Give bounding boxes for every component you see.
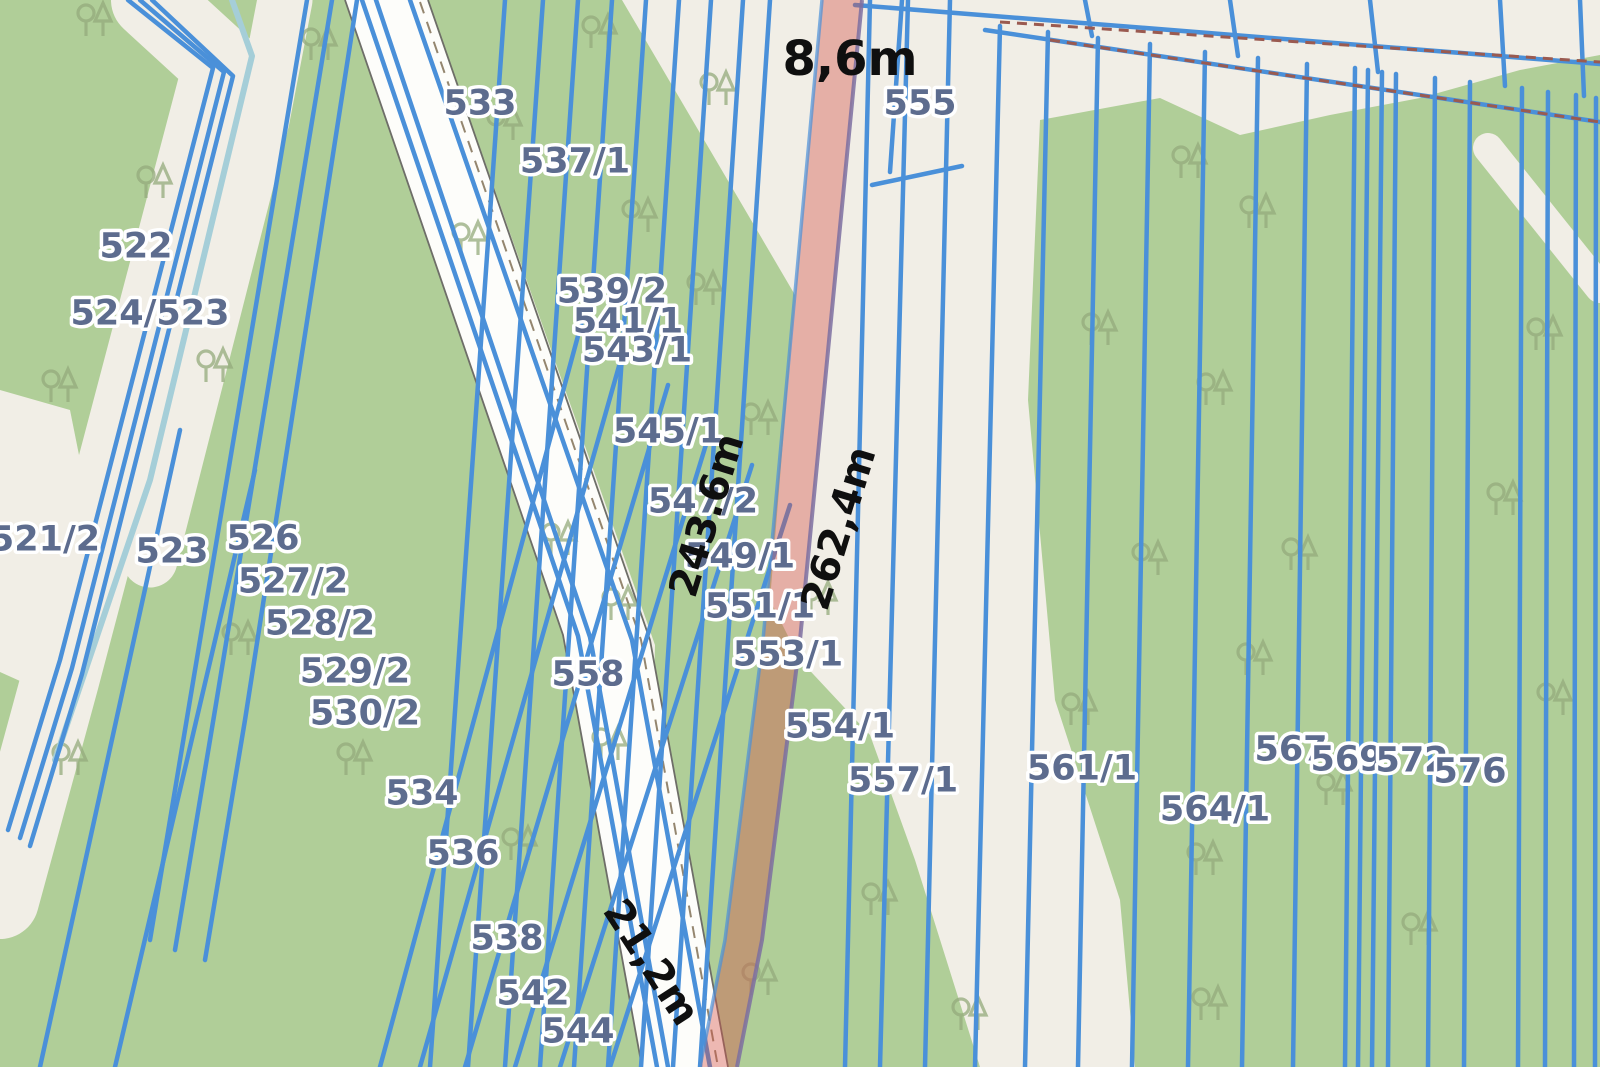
parcel-label-537-1: 537/1 (520, 141, 630, 181)
parcel-label-538: 538 (470, 918, 543, 958)
parcel-label-554-1: 554/1 (785, 706, 895, 746)
parcel-label-553-1: 553/1 (733, 634, 843, 674)
parcel-label-526: 526 (226, 518, 299, 558)
parcel-label-521-2: 521/2 (0, 519, 100, 559)
parcel-label-528-2: 528/2 (265, 603, 375, 643)
parcel-label-557-1: 557/1 (848, 760, 958, 800)
parcel-label-569: 569 (1310, 739, 1383, 779)
parcel-label-529-2: 529/2 (300, 651, 410, 691)
parcel-label-524-523: 524/523 (71, 293, 230, 333)
parcel-label-555: 555 (883, 83, 956, 123)
parcel-label-543-1: 543/1 (582, 330, 692, 370)
parcel-label-523: 523 (135, 531, 208, 571)
parcel-label-536: 536 (426, 833, 499, 873)
map-canvas[interactable]: 522 524/523 521/2 523 526 527/2 528/2 52… (0, 0, 1600, 1067)
parcel-label-522: 522 (99, 226, 172, 266)
parcel-label-561-1: 561/1 (1027, 748, 1137, 788)
parcel-label-534: 534 (385, 773, 458, 813)
parcel-label-544: 544 (541, 1011, 614, 1051)
map-viewport[interactable]: 522 524/523 521/2 523 526 527/2 528/2 52… (0, 0, 1600, 1067)
parcel-label-558: 558 (551, 654, 624, 694)
parcel-label-564-1: 564/1 (1160, 789, 1270, 829)
measurement-top-width: 8,6m (782, 31, 917, 87)
parcel-label-576: 576 (1433, 751, 1506, 791)
parcel-label-533: 533 (443, 83, 516, 123)
parcel-label-527-2: 527/2 (238, 561, 348, 601)
parcel-label-542: 542 (496, 973, 569, 1013)
parcel-label-530-2: 530/2 (310, 693, 420, 733)
